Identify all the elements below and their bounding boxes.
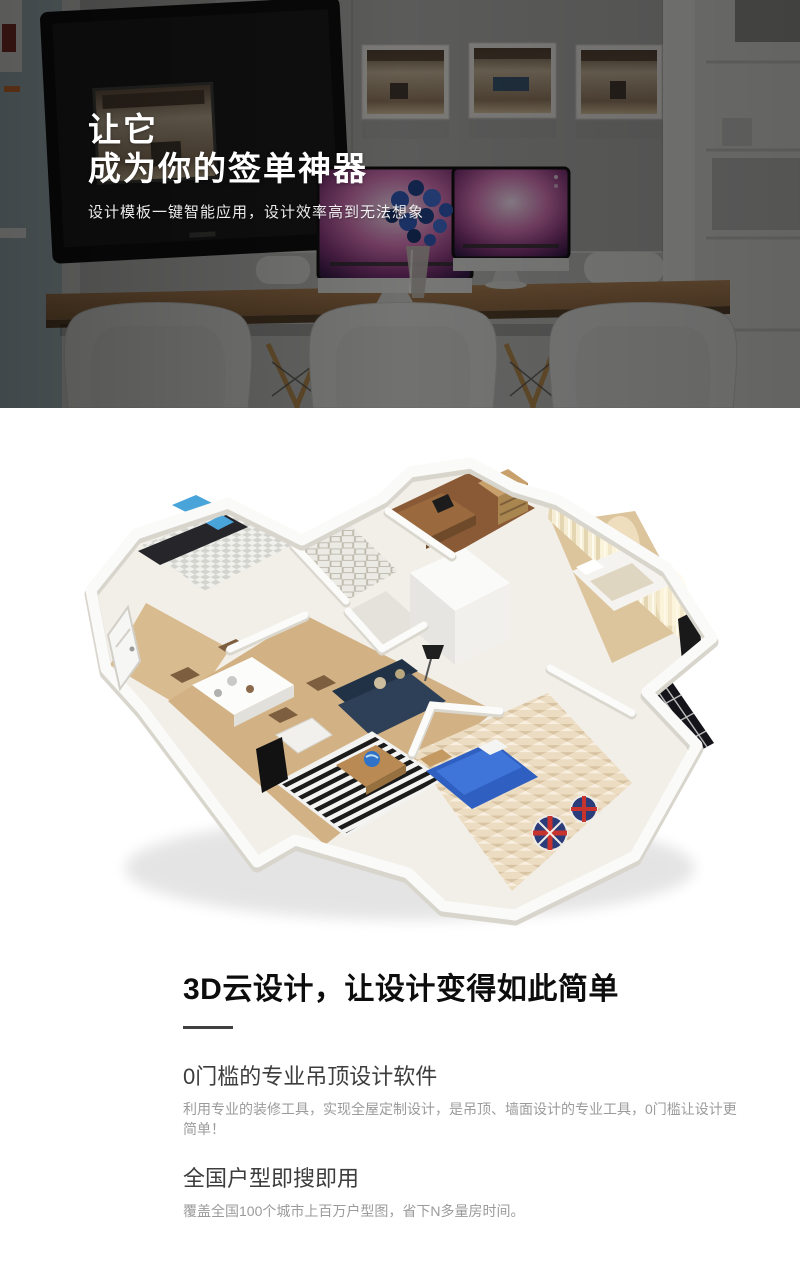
feature-block-floorplan-search: 全国户型即搜即用 覆盖全国100个城市上百万户型图，省下N多量房时间。 bbox=[183, 1165, 740, 1221]
feature-title: 0门槛的专业吊顶设计软件 bbox=[183, 1063, 740, 1091]
heading-divider bbox=[183, 1026, 233, 1029]
feature-text-section: 3D云设计，让设计变得如此简单 0门槛的专业吊顶设计软件 利用专业的装修工具，实… bbox=[0, 970, 800, 1221]
hero-title: 让它 成为你的签单神器 bbox=[88, 110, 424, 188]
floorplan-3d-illustration bbox=[80, 453, 720, 940]
feature-body: 利用专业的装修工具，实现全屋定制设计，是吊顶、墙面设计的专业工具，0门槛让设计更… bbox=[183, 1099, 740, 1139]
feature-title: 全国户型即搜即用 bbox=[183, 1165, 740, 1193]
hero-subtitle: 设计模板一键智能应用，设计效率高到无法想象 bbox=[88, 201, 424, 222]
hero-text-block: 让它 成为你的签单神器 设计模板一键智能应用，设计效率高到无法想象 bbox=[88, 110, 424, 222]
landing-page: 让它 成为你的签单神器 设计模板一键智能应用，设计效率高到无法想象 bbox=[0, 0, 800, 1271]
section-heading: 3D云设计，让设计变得如此简单 bbox=[183, 970, 740, 1010]
floorplan-section bbox=[80, 453, 720, 940]
feature-body: 覆盖全国100个城市上百万户型图，省下N多量房时间。 bbox=[183, 1201, 740, 1221]
hero-banner: 让它 成为你的签单神器 设计模板一键智能应用，设计效率高到无法想象 bbox=[0, 0, 800, 408]
feature-block-ceiling-design: 0门槛的专业吊顶设计软件 利用专业的装修工具，实现全屋定制设计，是吊顶、墙面设计… bbox=[183, 1063, 740, 1139]
